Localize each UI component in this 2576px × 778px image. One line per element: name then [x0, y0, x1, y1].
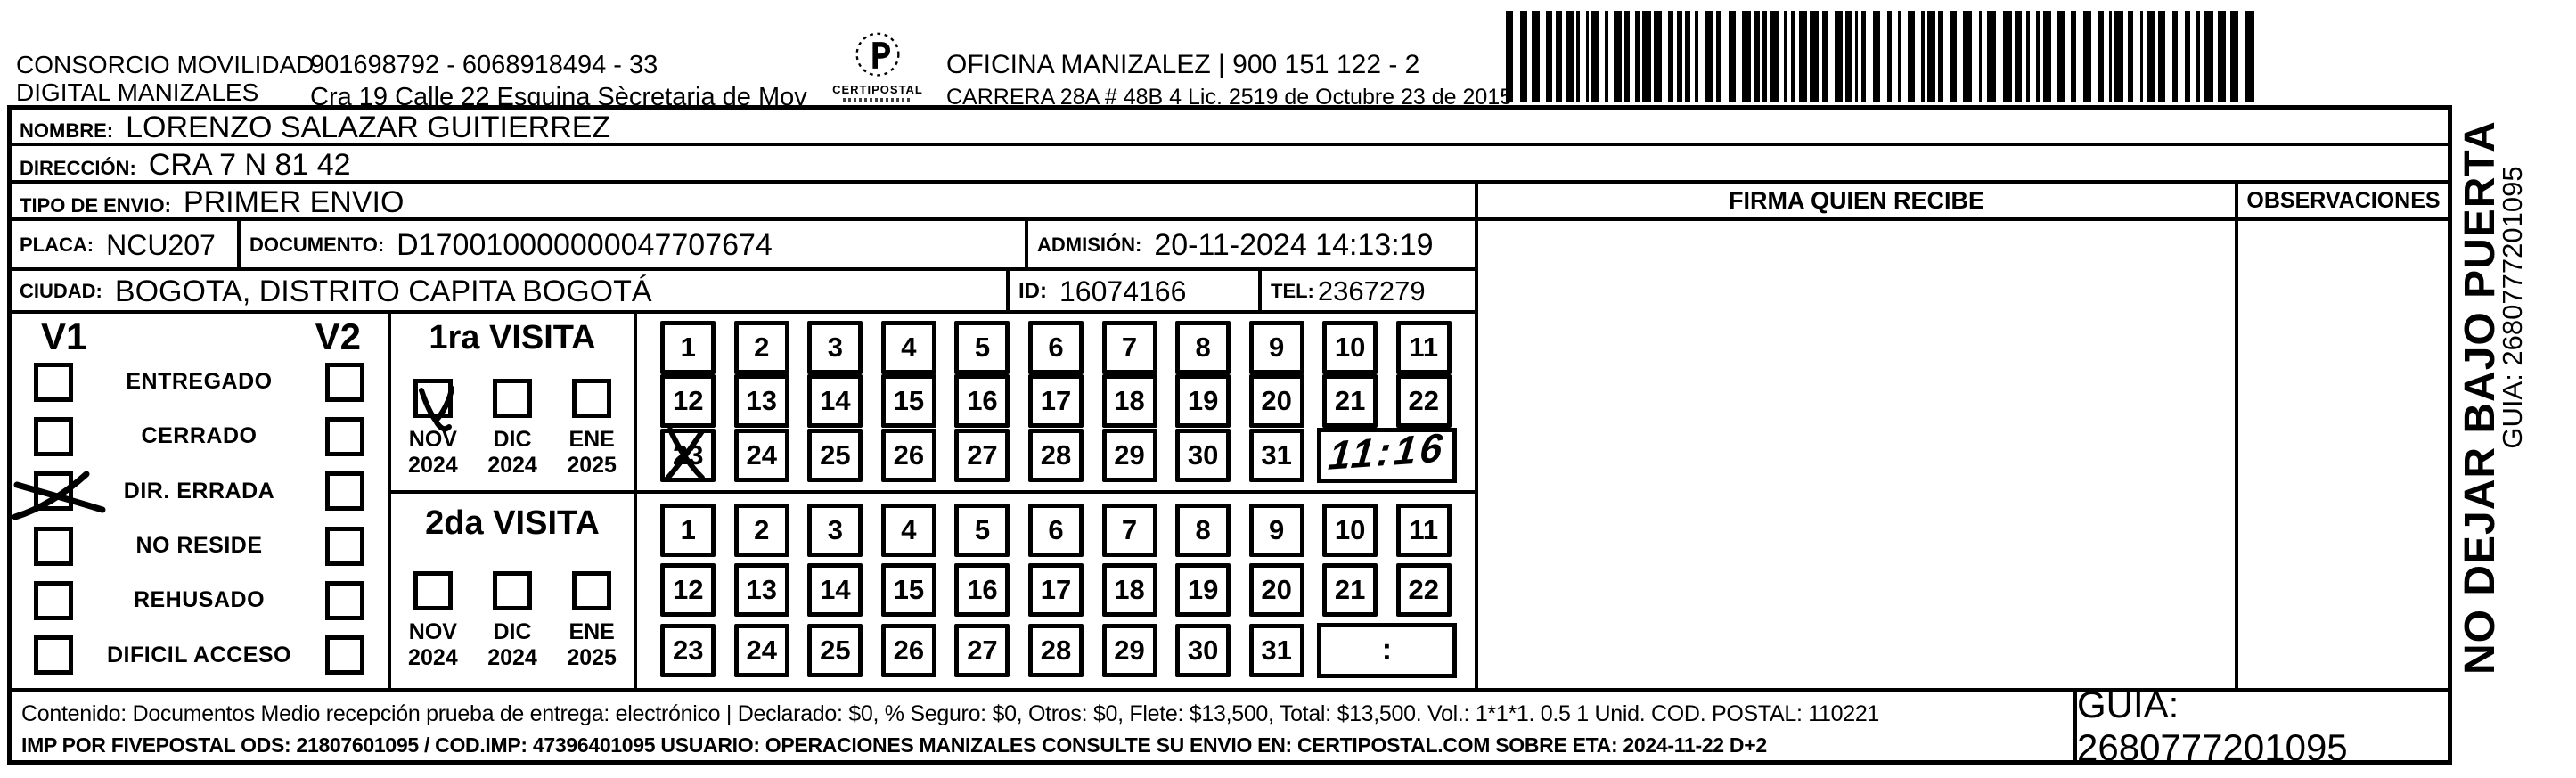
month-option: NOV2024 [408, 379, 458, 479]
day-number: 28 [1041, 439, 1071, 471]
barcode-bar [2185, 11, 2190, 102]
barcode-bar [1576, 11, 1580, 102]
day-number: 19 [1188, 385, 1218, 417]
barcode-bar [1835, 11, 1843, 102]
month-option: DIC2024 [487, 379, 537, 479]
barcode-bar [2026, 11, 2030, 102]
visita1-calendar-grid: 1234567891011121314151617181920212223242… [637, 314, 1475, 490]
day-number: 4 [901, 514, 916, 546]
day-cell: 3 [807, 504, 863, 557]
day-number: 20 [1261, 385, 1291, 417]
day-cell: 29 [1102, 429, 1157, 482]
day-cell: 31 [1249, 624, 1304, 677]
v2-checkbox [325, 363, 364, 402]
day-number: 17 [1041, 385, 1071, 417]
day-cell: 13 [734, 374, 789, 428]
tel-value: 2367279 [1318, 275, 1426, 307]
day-cell: 6 [1028, 504, 1084, 557]
month-option: DIC2024 [487, 571, 537, 671]
barcode-bar [1887, 11, 1892, 102]
observaciones-header-text: OBSERVACIONES [2246, 188, 2440, 214]
firma-header-text: FIRMA QUIEN RECIBE [1729, 187, 1984, 215]
barcode-bar [1591, 11, 1599, 102]
day-cell: 3 [807, 321, 863, 374]
time-box: 11:16 [1317, 428, 1457, 483]
barcode-bar [1845, 11, 1852, 102]
barcode-bar [1614, 11, 1622, 102]
delivery-guide-scan: CONSORCIO MOVILIDAD DIGITAL MANIZALES 90… [0, 0, 2576, 778]
status-option-row: ENTREGADO [11, 363, 388, 402]
visita2-box: 2da VISITA NOV2024DIC2024ENE2025 [388, 490, 637, 692]
day-number: 1 [681, 332, 696, 364]
barcode-bar [1987, 11, 1996, 102]
barcode-bar [1546, 11, 1552, 102]
barcode-bar [1705, 11, 1713, 102]
day-number: 11 [1409, 514, 1438, 546]
day-cell: 24 [734, 624, 789, 677]
barcode-bar [1605, 11, 1608, 102]
barcode-bar [1921, 11, 1925, 102]
admision-cell: ADMISIÓN: 20-11-2024 14:13:19 [1025, 217, 1478, 271]
company-line2: DIGITAL MANIZALES [16, 78, 314, 106]
day-number: 7 [1122, 514, 1137, 546]
month-label: ENE [568, 427, 614, 453]
day-cell: 20 [1249, 563, 1304, 617]
v1-checkbox [34, 635, 73, 675]
day-cell: 9 [1249, 321, 1304, 374]
visita2-title: 2da VISITA [425, 504, 600, 543]
day-cell: 1 [660, 321, 716, 374]
day-number: 8 [1195, 514, 1210, 546]
company-registry: 901698792 - 6068918494 - 33 Cra 19 Calle… [310, 49, 807, 113]
day-cell: 15 [881, 374, 936, 428]
status-option-row: DIFICIL ACCESO [11, 635, 388, 675]
guia-value: GUIA: 2680777201095 [2077, 684, 2449, 769]
status-option-label: REHUSADO [73, 587, 325, 613]
barcode-bar [1927, 11, 1935, 102]
day-number: 31 [1261, 635, 1291, 667]
barcode-bar [1668, 11, 1673, 102]
tipo-envio-value: PRIMER ENVIO [184, 185, 404, 220]
day-cell: 12 [660, 563, 716, 617]
documento-label: DOCUMENTO: [249, 233, 384, 257]
barcode-bar [1586, 11, 1589, 102]
day-cell: 29 [1102, 624, 1157, 677]
month-option: ENE2025 [567, 379, 617, 479]
time-box: : [1317, 623, 1457, 678]
company-line1: CONSORCIO MOVILIDAD [16, 51, 314, 78]
day-cell: 18 [1102, 374, 1157, 428]
status-option-row: REHUSADO [11, 581, 388, 620]
day-number: 10 [1335, 332, 1365, 364]
barcode-bar [1642, 11, 1651, 102]
visita1-calendar: 1234567891011121314151617181920212223242… [634, 310, 1478, 494]
observaciones-area [2235, 217, 2452, 692]
day-number: 4 [901, 332, 916, 364]
month-option: ENE2025 [567, 571, 617, 671]
barcode-bar [1950, 11, 1957, 102]
day-number: 21 [1335, 574, 1365, 606]
barcode-bar [1855, 11, 1858, 102]
day-number: 9 [1269, 514, 1284, 546]
registry-line: 901698792 - 6068918494 - 33 [310, 49, 807, 81]
day-cell: 16 [954, 563, 1010, 617]
day-number: 27 [967, 439, 997, 471]
month-label: DIC [493, 427, 531, 453]
day-cell: 4 [881, 504, 936, 557]
day-number: 30 [1188, 439, 1218, 471]
status-option-label: DIFICIL ACCESO [73, 643, 325, 668]
barcode-bar [1685, 11, 1690, 102]
ciudad-value: BOGOTA, DISTRITO CAPITA BOGOTÁ [115, 274, 652, 309]
month-label: ENE [568, 619, 614, 645]
day-number: 18 [1114, 574, 1144, 606]
id-label: ID: [1018, 279, 1047, 304]
day-number: 12 [673, 574, 703, 606]
day-cell: 20 [1249, 374, 1304, 428]
barcode-bar [1784, 11, 1787, 102]
month-year: 2024 [487, 453, 537, 479]
day-cell: 8 [1175, 321, 1231, 374]
day-cell: 25 [807, 429, 863, 482]
day-number: 2 [754, 332, 769, 364]
day-number: 26 [894, 439, 924, 471]
day-number: 6 [1048, 514, 1063, 546]
day-cell: 28 [1028, 429, 1084, 482]
nombre-value: LORENZO SALAZAR GUITIERREZ [126, 111, 610, 145]
status-options: ENTREGADOCERRADODIR. ERRADANO RESIDEREHU… [11, 355, 388, 683]
v1-checkbox [34, 471, 73, 511]
ciudad-label: CIUDAD: [20, 280, 102, 303]
status-option-label: DIR. ERRADA [73, 479, 325, 504]
day-cell: 22 [1396, 374, 1452, 428]
day-cell: 4 [881, 321, 936, 374]
admision-value: 20-11-2024 14:13:19 [1154, 228, 1433, 263]
barcode-bar [2245, 11, 2254, 102]
v1-checkbox [34, 581, 73, 620]
day-number: 7 [1122, 332, 1137, 364]
barcode-bar [1729, 11, 1736, 102]
barcode-bar [2015, 11, 2022, 102]
day-cell: 30 [1175, 624, 1231, 677]
v2-checkbox [325, 581, 364, 620]
visita1-title: 1ra VISITA [429, 319, 595, 357]
day-number: 25 [820, 635, 850, 667]
day-number: 23 [673, 439, 703, 471]
day-cell: 9 [1249, 504, 1304, 557]
status-option-row: CERRADO [11, 417, 388, 456]
day-cell: 26 [881, 429, 936, 482]
status-option-label: NO RESIDE [73, 533, 325, 559]
day-number: 10 [1335, 514, 1365, 546]
logo-text: CERTIPOSTAL [820, 83, 936, 96]
day-cell: 26 [881, 624, 936, 677]
barcode [1506, 11, 2261, 102]
day-number: 20 [1261, 574, 1291, 606]
barcode-bar [1979, 11, 1982, 102]
barcode-bar [1754, 11, 1760, 102]
day-number: 23 [673, 635, 703, 667]
certipostal-logo-icon [853, 30, 903, 80]
day-cell: 11 [1396, 504, 1452, 557]
barcode-bar [2071, 11, 2076, 102]
day-number: 6 [1048, 332, 1063, 364]
logo-tagline-illegible [843, 98, 912, 102]
day-number: 24 [747, 635, 777, 667]
day-cell: 14 [807, 563, 863, 617]
month-checkbox [493, 379, 532, 418]
barcode-bar [1716, 11, 1721, 102]
barcode-bar [1963, 11, 1972, 102]
day-cell: 1 [660, 504, 716, 557]
v1-header: V1 [41, 315, 86, 358]
month-year: 2025 [567, 453, 617, 479]
barcode-bar [2230, 11, 2238, 102]
day-cell: 2 [734, 321, 789, 374]
day-cell: 14 [807, 374, 863, 428]
day-number: 26 [894, 635, 924, 667]
company-name: CONSORCIO MOVILIDAD DIGITAL MANIZALES [16, 51, 314, 106]
barcode-bar [2172, 11, 2178, 102]
day-cell: 13 [734, 563, 789, 617]
barcode-bar [1799, 11, 1807, 102]
day-cell: 23 [660, 624, 716, 677]
barcode-bar [1677, 11, 1682, 102]
day-number: 24 [747, 439, 777, 471]
direccion-row: DIRECCIÓN: CRA 7 N 81 42 [7, 143, 2452, 184]
documento-value: D170010000000047707674 [397, 228, 773, 263]
tipo-envio-label: TIPO DE ENVIO: [20, 194, 171, 217]
status-panel: V1 V2 ENTREGADOCERRADODIR. ERRADANO RESI… [7, 310, 391, 692]
barcode-bar [2098, 11, 2104, 102]
day-number: 14 [820, 385, 850, 417]
barcode-bar [1556, 11, 1562, 102]
day-number: 15 [894, 385, 924, 417]
day-cell: 2 [734, 504, 789, 557]
day-number: 21 [1335, 385, 1365, 417]
day-cell: 10 [1322, 321, 1378, 374]
day-number: 12 [673, 385, 703, 417]
day-number: 30 [1188, 635, 1218, 667]
visita2-calendar: 1234567891011121314151617181920212223242… [634, 490, 1478, 692]
month-checkbox [413, 571, 453, 610]
nombre-label: NOMBRE: [20, 119, 113, 143]
barcode-bar [2218, 11, 2226, 102]
contents-line: Contenido: Documentos Medio recepción pr… [21, 699, 2063, 730]
side-guia-text: GUIA: 2680777201095 [2497, 158, 2529, 457]
imp-line: IMP POR FIVEPOSTAL ODS: 21807601095 / CO… [21, 730, 2063, 761]
barcode-bar [1635, 11, 1640, 102]
day-number: 16 [967, 574, 997, 606]
barcode-bar [1791, 11, 1795, 102]
barcode-bar [2147, 11, 2155, 102]
day-cell: 18 [1102, 563, 1157, 617]
v2-header: V2 [315, 315, 361, 358]
month-label: DIC [493, 619, 531, 645]
day-number: 13 [747, 385, 777, 417]
day-cell: 27 [954, 429, 1010, 482]
day-cell: 7 [1102, 321, 1157, 374]
month-year: 2024 [487, 645, 537, 671]
day-cell: 30 [1175, 429, 1231, 482]
barcode-bar [2083, 11, 2091, 102]
month-year: 2024 [408, 453, 458, 479]
firma-header: FIRMA QUIEN RECIBE [1475, 180, 2238, 221]
visita2-calendar-grid: 1234567891011121314151617181920212223242… [637, 494, 1475, 688]
placa-label: PLACA: [20, 233, 94, 257]
barcode-bar [2109, 11, 2112, 102]
barcode-bar [1770, 11, 1779, 102]
month-checkbox [413, 379, 453, 418]
month-checkbox [493, 571, 532, 610]
barcode-bar [1566, 11, 1574, 102]
office-info: OFICINA MANIZALEZ | 900 151 122 - 2 CARR… [946, 48, 1512, 114]
day-number: 14 [820, 574, 850, 606]
barcode-bar [2036, 11, 2040, 102]
month-year: 2025 [567, 645, 617, 671]
month-year: 2024 [408, 645, 458, 671]
v1-checkbox [34, 417, 73, 456]
day-number: 5 [975, 514, 990, 546]
barcode-bar [1506, 11, 1513, 102]
nombre-row: NOMBRE: LORENZO SALAZAR GUITIERREZ [7, 105, 2452, 146]
barcode-bar [1695, 11, 1698, 102]
day-number: 8 [1195, 332, 1210, 364]
day-cell: 16 [954, 374, 1010, 428]
month-option: NOV2024 [408, 571, 458, 671]
day-number: 17 [1041, 574, 1071, 606]
day-cell: 19 [1175, 563, 1231, 617]
v1-checkbox [34, 527, 73, 566]
side-warning-text: NO DEJAR BAJO PUERTA [2456, 122, 2502, 675]
day-cell: 27 [954, 624, 1010, 677]
day-number: 28 [1041, 635, 1071, 667]
day-number: 3 [828, 514, 843, 546]
barcode-bar [1873, 11, 1880, 102]
day-number: 1 [681, 514, 696, 546]
day-cell: 19 [1175, 374, 1231, 428]
office-line: OFICINA MANIZALEZ | 900 151 122 - 2 [946, 48, 1512, 81]
footer-fineprint: Contenido: Documentos Medio recepción pr… [7, 688, 2077, 765]
day-cell: 11 [1396, 321, 1452, 374]
barcode-bar [1908, 11, 1915, 102]
v2-checkbox [325, 471, 364, 511]
barcode-bar [1654, 11, 1662, 102]
v2-checkbox [325, 527, 364, 566]
status-option-label: CERRADO [73, 423, 325, 449]
barcode-bar [1520, 11, 1527, 102]
barcode-bar [1861, 11, 1866, 102]
visita1-months: NOV2024DIC2024ENE2025 [408, 379, 617, 479]
status-option-row: NO RESIDE [11, 527, 388, 566]
barcode-bar [2128, 11, 2133, 102]
barcode-bar [2140, 11, 2143, 102]
day-cell: 23 [660, 429, 716, 482]
day-number: 25 [820, 439, 850, 471]
barcode-bar [1742, 11, 1751, 102]
barcode-bar [1762, 11, 1767, 102]
day-cell: 7 [1102, 504, 1157, 557]
tel-label: TEL: [1271, 280, 1314, 303]
barcode-bar [1898, 11, 1901, 102]
day-number: 5 [975, 332, 990, 364]
tel-cell: TEL: 2367279 [1258, 267, 1478, 314]
day-number: 27 [967, 635, 997, 667]
month-checkbox [572, 571, 611, 610]
day-number: 22 [1408, 574, 1438, 606]
barcode-bar [2057, 11, 2065, 102]
direccion-label: DIRECCIÓN: [20, 157, 136, 180]
tipo-envio-cell: TIPO DE ENVIO: PRIMER ENVIO [7, 180, 1478, 221]
day-cell: 6 [1028, 321, 1084, 374]
status-option-row: DIR. ERRADA [11, 471, 388, 511]
id-cell: ID: 16074166 [1006, 267, 1262, 314]
ciudad-cell: CIUDAD: BOGOTA, DISTRITO CAPITA BOGOTÁ [7, 267, 1010, 314]
day-cell: 17 [1028, 563, 1084, 617]
day-cell: 22 [1396, 563, 1452, 617]
observaciones-header: OBSERVACIONES [2235, 180, 2452, 221]
day-number: 2 [754, 514, 769, 546]
day-number: 11 [1409, 332, 1438, 364]
day-cell: 21 [1322, 563, 1378, 617]
day-number: 3 [828, 332, 843, 364]
day-cell: 31 [1249, 429, 1304, 482]
time-colon: : [1382, 633, 1392, 667]
handwritten-time: 11:16 [1326, 424, 1448, 479]
day-number: 18 [1114, 385, 1144, 417]
day-cell: 24 [734, 429, 789, 482]
placa-cell: PLACA: NCU207 [7, 217, 241, 271]
barcode-bar [1624, 11, 1630, 102]
barcode-bar [1810, 11, 1819, 102]
month-checkbox [572, 379, 611, 418]
day-cell: 10 [1322, 504, 1378, 557]
day-cell: 28 [1028, 624, 1084, 677]
day-cell: 12 [660, 374, 716, 428]
day-cell: 8 [1175, 504, 1231, 557]
day-cell: 15 [881, 563, 936, 617]
day-number: 29 [1114, 635, 1144, 667]
v2-checkbox [325, 635, 364, 675]
barcode-bar [2158, 11, 2165, 102]
day-number: 22 [1408, 385, 1438, 417]
day-number: 13 [747, 574, 777, 606]
day-number: 31 [1261, 439, 1291, 471]
barcode-bar [2204, 11, 2213, 102]
day-cell: 17 [1028, 374, 1084, 428]
barcode-bar [2043, 11, 2051, 102]
day-cell: 21 [1322, 374, 1378, 428]
v2-checkbox [325, 417, 364, 456]
month-label: NOV [409, 619, 457, 645]
firma-signature-area [1475, 217, 2238, 692]
barcode-bar [2003, 11, 2012, 102]
day-cell: 25 [807, 624, 863, 677]
month-label: NOV [409, 427, 457, 453]
barcode-bar [2114, 11, 2123, 102]
barcode-bar [1532, 11, 1540, 102]
day-number: 29 [1114, 439, 1144, 471]
day-number: 16 [967, 385, 997, 417]
day-number: 19 [1188, 574, 1218, 606]
visita2-months: NOV2024DIC2024ENE2025 [408, 571, 617, 671]
barcode-bar [1822, 11, 1828, 102]
day-cell: 5 [954, 321, 1010, 374]
id-value: 16074166 [1059, 275, 1186, 308]
guia-box: GUIA: 2680777201095 [2073, 688, 2452, 765]
placa-value: NCU207 [106, 229, 216, 262]
v1-checkbox [34, 363, 73, 402]
